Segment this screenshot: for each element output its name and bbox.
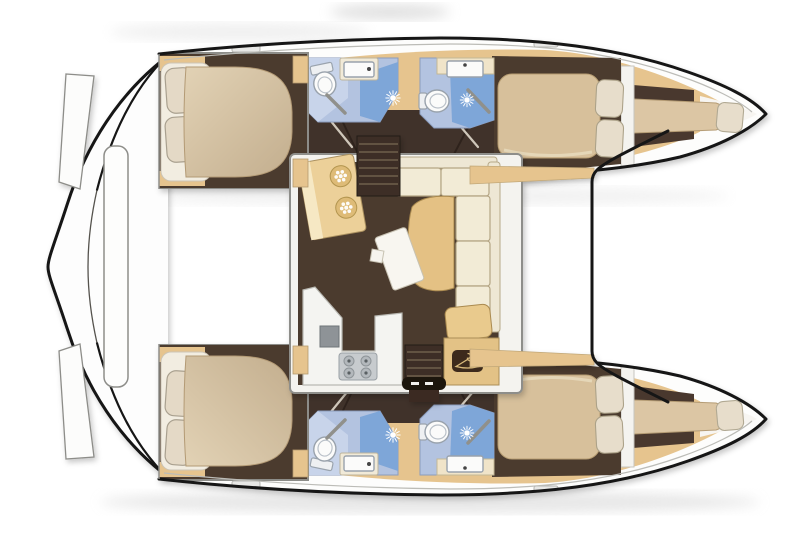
forward-crossbeam-outline xyxy=(592,131,668,402)
stove-icon xyxy=(339,353,377,380)
stair-handrail xyxy=(402,377,446,390)
nightstand xyxy=(293,159,308,187)
nightstand xyxy=(293,346,308,374)
side-deck-trim xyxy=(470,349,594,367)
catamaran-floorplan: Catamaran interior layout floor plan (to… xyxy=(0,0,800,533)
side-deck-trim xyxy=(470,166,594,184)
sofa-end-seat xyxy=(444,304,492,342)
stairs-to-port-hull xyxy=(357,136,400,196)
stern-platform xyxy=(48,56,168,477)
fridge xyxy=(320,326,339,347)
floorplan-image: Catamaran interior layout floor plan (to… xyxy=(0,0,800,533)
saloon xyxy=(290,136,594,402)
aft-beam xyxy=(104,146,128,387)
small-stool xyxy=(370,249,384,263)
